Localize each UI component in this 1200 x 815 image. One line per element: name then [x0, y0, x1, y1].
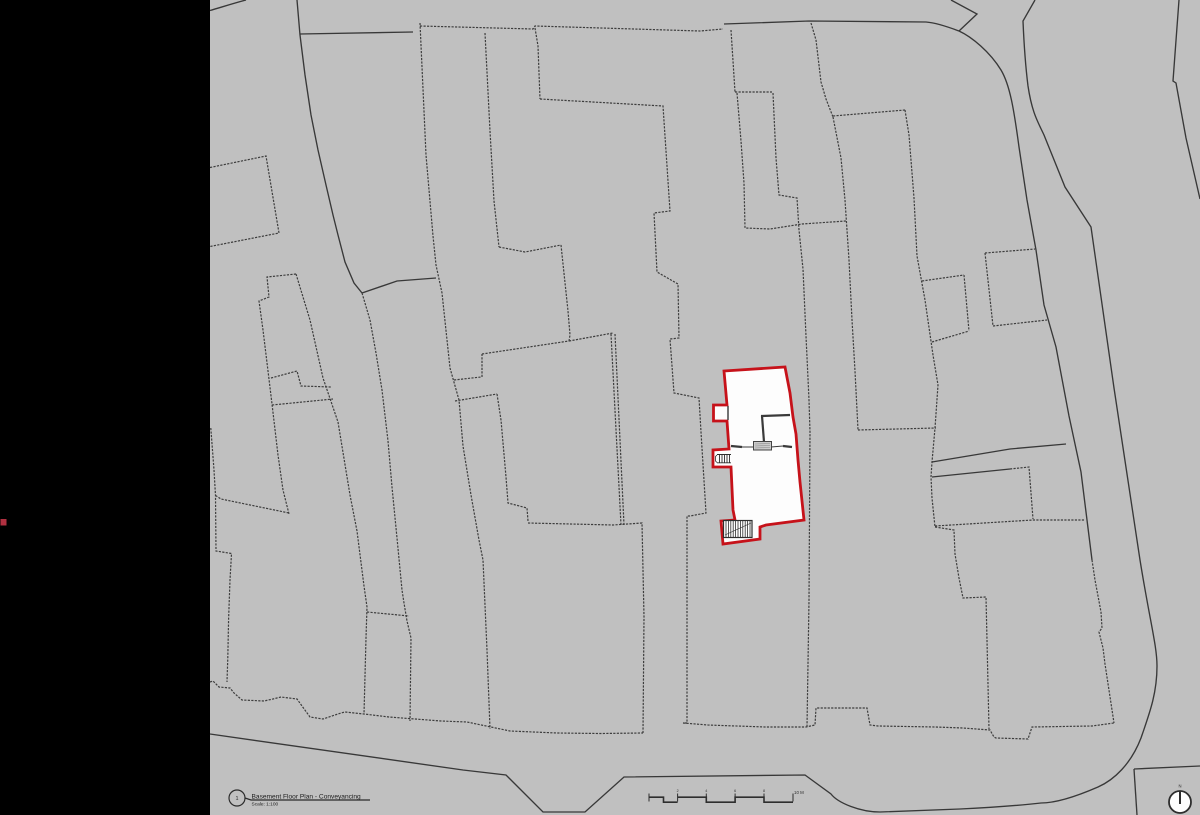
svg-text:Basement Floor Plan - Conveyan: Basement Floor Plan - Conveyancing	[252, 794, 362, 801]
svg-text:6: 6	[734, 789, 736, 793]
svg-text:1: 1	[235, 796, 238, 802]
svg-text:2: 2	[677, 789, 679, 793]
svg-text:Scale: 1:100: Scale: 1:100	[252, 801, 279, 807]
svg-text:4: 4	[705, 789, 707, 793]
svg-text:10 M: 10 M	[794, 790, 804, 795]
svg-text:8: 8	[763, 789, 765, 793]
svg-text:N: N	[1178, 784, 1181, 789]
